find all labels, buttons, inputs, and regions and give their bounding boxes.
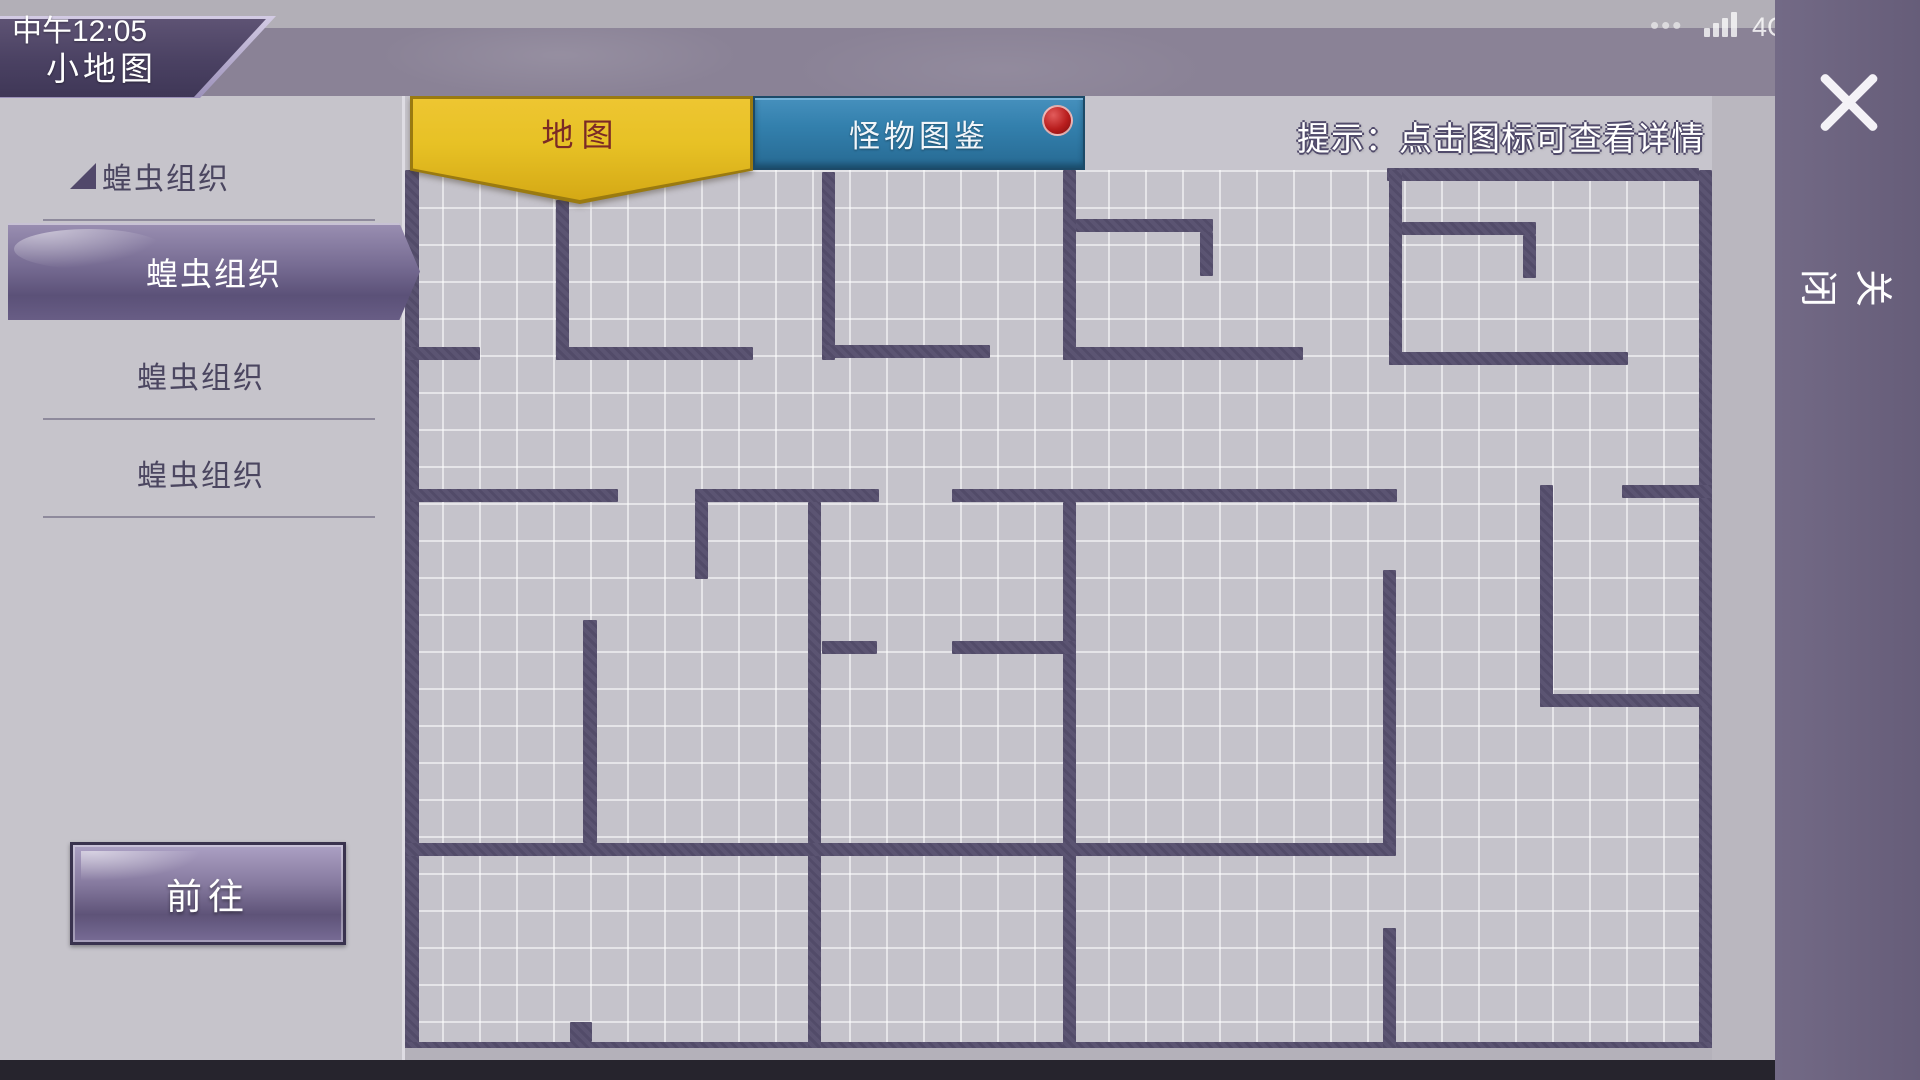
map-wall [822,641,877,654]
map-wall [1383,928,1396,1048]
map-wall [822,172,835,360]
map-wall [952,489,1397,502]
map-wall [695,502,708,579]
tab-bestiary[interactable]: 怪物图鉴 [753,96,1085,170]
map-wall [570,1022,592,1042]
map-wall [1523,235,1536,278]
sidebar-item[interactable]: 蝗虫组织 [0,343,402,407]
signal-icon [1704,12,1746,37]
tab-map-label: 地图 [410,110,753,156]
sidebar-group-label: 蝗虫组织 [102,154,230,198]
sidebar-item[interactable]: 蝗虫组织 [0,441,402,505]
tab-bestiary-label: 怪物图鉴 [849,111,989,156]
sidebar-item-label: 蝗虫组织 [137,451,265,495]
close-icon[interactable] [1811,64,1887,140]
sidebar-group-header: 蝗虫组织 [70,158,230,194]
map-grid[interactable] [405,170,1712,1048]
map-wall [410,489,618,502]
map-wall [1402,222,1536,235]
divider [43,418,375,420]
page-title: 小地图 [46,42,157,90]
map-wall [405,843,1396,856]
divider [43,516,375,518]
minimap-screen: { "status_bar": { "time": "中午12:05", "pa… [0,0,1920,1080]
go-button-label: 前往 [166,868,250,920]
divider [43,219,375,221]
map-wall [1387,168,1699,181]
map-wall [1389,170,1402,365]
map-wall [556,200,569,360]
menu-dots-icon: ••• [1650,10,1683,41]
triangle-icon [70,163,96,189]
map-wall [583,620,597,843]
map-wall [1063,502,1076,1048]
sidebar-item-label: 蝗虫组织 [146,249,282,295]
sidebar-item-label: 蝗虫组织 [137,353,265,397]
sidebar-item-selected[interactable]: 蝗虫组织 [8,223,420,320]
map-wall [1200,232,1213,276]
map-wall [1699,170,1712,1055]
bottom-edge [0,1060,1775,1080]
map-wall [1063,170,1076,360]
map-wall [1622,485,1712,498]
close-panel [1775,0,1920,1080]
map-wall [1540,694,1712,707]
map-wall [1389,352,1628,365]
map-wall [822,345,990,358]
map-wall [405,347,480,360]
map-wall [1076,219,1213,232]
close-label[interactable]: 关闭 [1794,247,1904,339]
map-right-margin [1712,96,1775,1062]
map-wall [808,502,821,1048]
go-button[interactable]: 前往 [70,842,346,945]
map-wall [556,347,753,360]
tip-text: 提示：点击图标可查看详情 [1040,112,1705,160]
statusbar [0,28,1775,96]
tab-map[interactable]: 地图 [410,96,753,204]
map-wall [1540,485,1553,707]
map-wall [695,489,879,502]
map-wall [952,641,1076,654]
map-wall [1063,347,1303,360]
map-wall [1383,570,1396,852]
